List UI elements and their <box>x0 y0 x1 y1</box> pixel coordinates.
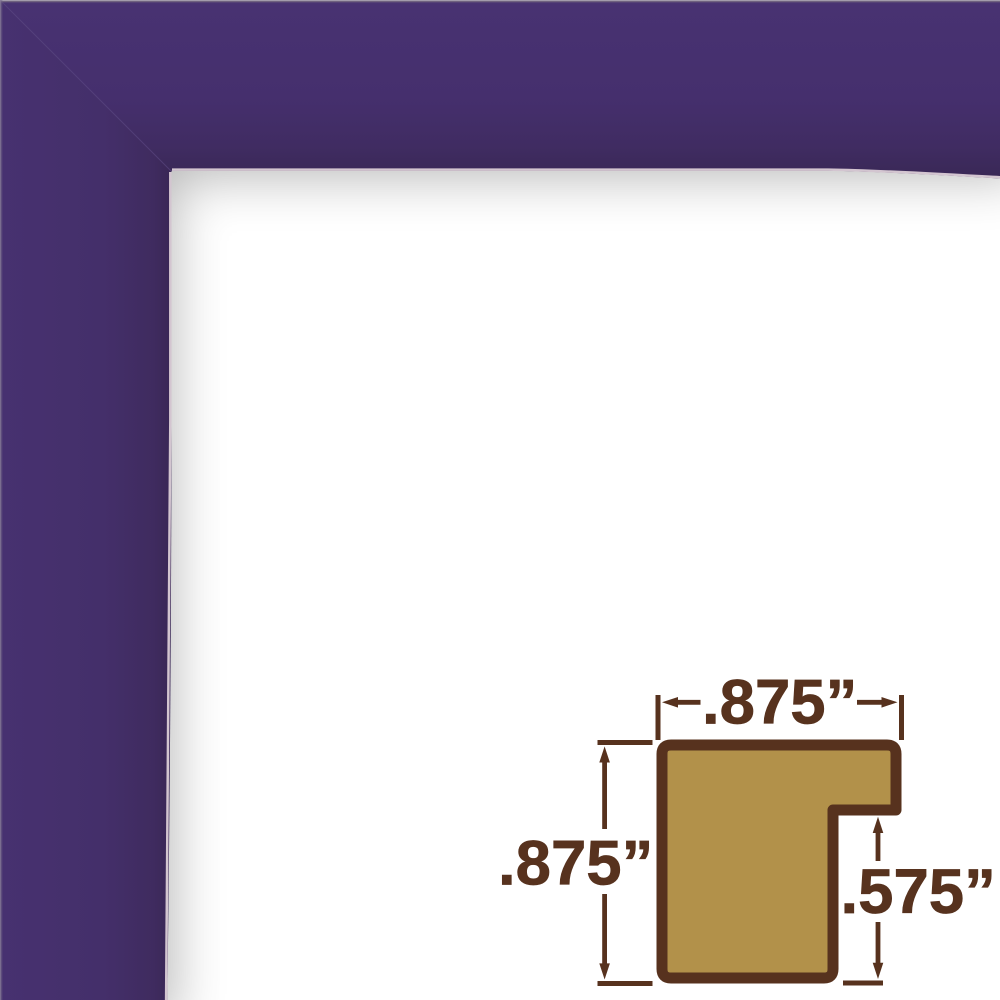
svg-text:.875”: .875” <box>702 668 857 738</box>
svg-text:.875”: .875” <box>498 829 653 899</box>
svg-text:.575”: .575” <box>841 857 996 927</box>
